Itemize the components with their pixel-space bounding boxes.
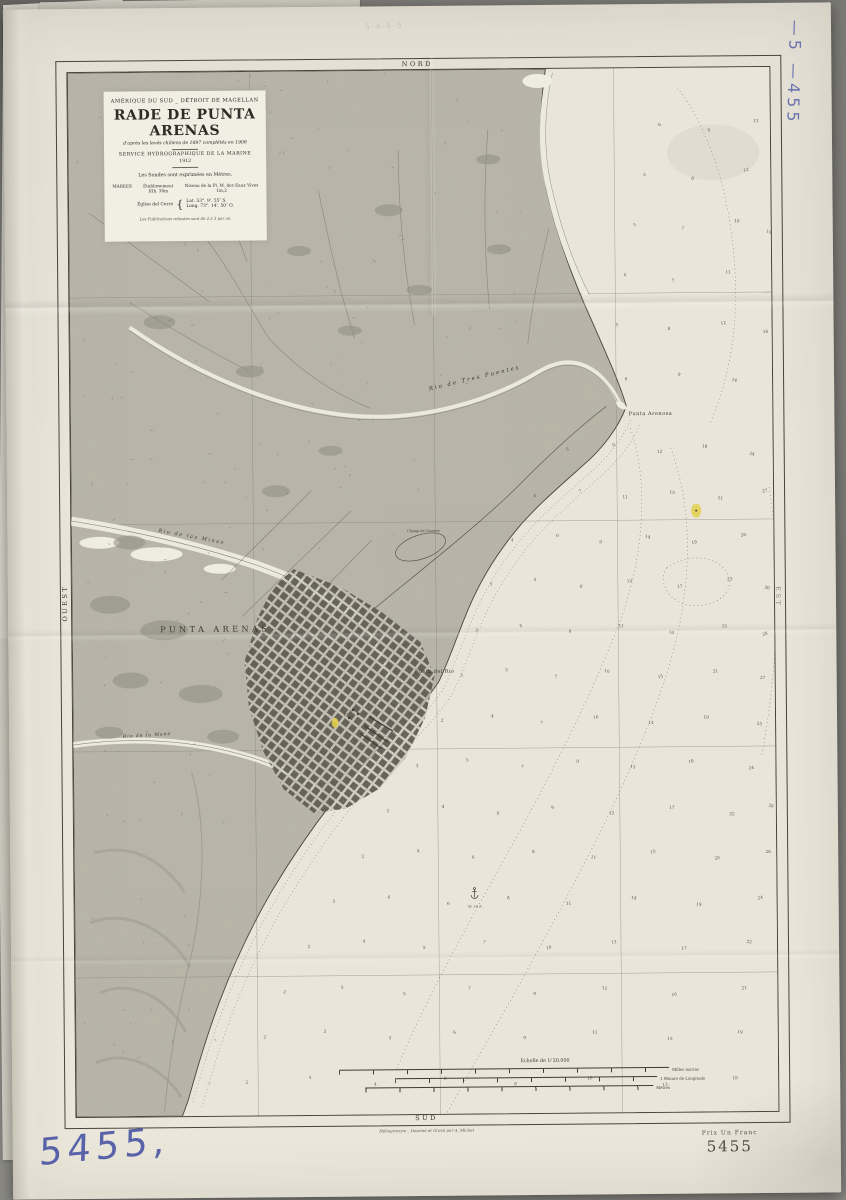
sounding-value: 5 [505, 667, 508, 672]
sounding-value: 20 [714, 855, 720, 861]
establishment-col: Établissement IIIh. 30m [143, 183, 173, 193]
chart-title: RADE DE PUNTA ARENAS [104, 106, 266, 139]
map-label: Punta del Rio [415, 669, 454, 675]
scale-bar-miles-label: Milles marins [672, 1067, 699, 1072]
compass-label-west: OUEST [59, 573, 72, 633]
scale-bar-longitude-label: 1 Minute de Longitude [660, 1076, 705, 1081]
sounding-value: 11 [725, 269, 731, 274]
brace: { [176, 198, 183, 211]
sounding-value: 7 [681, 226, 684, 231]
map-label: Punta Arenosa [629, 411, 673, 417]
agency-label: SERVICE HYDROGRAPHIQUE DE LA MARINE [104, 151, 266, 157]
sounding-value: 17 [677, 583, 683, 589]
sounding-value: 14 [648, 720, 654, 725]
sounding-value: 11 [592, 1029, 598, 1034]
tides-table: MARÉES Établissement IIIh. 30m Niveau de… [112, 182, 258, 193]
sounding-value: 13 [611, 939, 617, 945]
sounding-value: 13 [753, 118, 759, 123]
map-label: W. 30 E. [468, 904, 483, 908]
sounding-value: 15 [667, 1036, 673, 1042]
scale-bar-miles [339, 1067, 669, 1075]
sounding-value: 21 [713, 668, 719, 674]
sounding-value: 21 [741, 985, 747, 991]
station-name: Église del Cerro [137, 202, 173, 207]
sounding-value: 16 [669, 630, 675, 636]
sounding-value: 22 [746, 939, 752, 945]
sounding-value: 23 [727, 576, 733, 581]
sounding-value: 6 [625, 376, 628, 381]
sounding-value: 17 [681, 946, 687, 951]
sounding-value: 7 [468, 986, 471, 991]
sounding-value: 15 [669, 490, 675, 496]
sounding-value: 14 [631, 895, 637, 901]
terrain-speckle [361, 342, 362, 344]
sounding-value: 6 [556, 533, 559, 538]
scale-block: Echelle de 1⁄ 20.000 Milles marins 1 Min… [339, 1057, 751, 1093]
handwritten-number-vertical: —5 —455 [779, 19, 805, 170]
sounding-value: 18 [702, 443, 708, 449]
chart-year: 1912 [104, 158, 266, 164]
pencil-annotation: 5·4·5·5 [365, 21, 404, 31]
divider [172, 148, 198, 149]
sounding-value: 12 [657, 449, 663, 454]
sounding-value: 6 [472, 855, 475, 860]
sounding-value: 16 [763, 329, 769, 335]
sounding-value: 26 [766, 849, 772, 854]
region-label: AMÉRIQUE DU SUD _ DÉTROIT DE MAGELLAN [104, 97, 266, 104]
sounding-value: 4 [363, 939, 366, 944]
sounding-value: 11 [619, 623, 625, 628]
sounding-value: 11 [622, 494, 628, 499]
sounding-value: 3 [489, 581, 492, 586]
sounding-value: 2 [263, 1034, 266, 1039]
engraver-imprint: Héliogravure _ Dessiné et Gravé par A. M… [277, 1127, 577, 1135]
price-and-number: Prix Un Franc 5455 [685, 1129, 775, 1156]
sounding-value: 7 [521, 764, 524, 769]
station-coordinates: Lat. 53°. 9'. 55″ S. Long. 73°. 14'. 50″… [186, 199, 234, 209]
sounding-value: 3 [386, 808, 389, 813]
scale-bar-metres-label: Mètres [656, 1085, 670, 1090]
map-inner-border: 6913581257101447115812166914591218244711… [66, 66, 779, 1118]
title-footnote: Les Publications relevées sont de 2 à 3 … [105, 215, 267, 221]
scale-bar-longitude [395, 1076, 657, 1083]
tides-label: MARÉES [112, 183, 132, 193]
sounding-value: 10 [734, 218, 740, 224]
soundings-note: Les Sondes sont exprimées en Mètres. [104, 172, 266, 178]
sounding-value: 19 [703, 714, 709, 720]
sounding-value: 17 [669, 805, 675, 810]
sounding-value: 27 [760, 675, 766, 680]
divider [172, 166, 198, 167]
sounding-value: 24 [748, 765, 754, 771]
price-label: Prix Un Franc [685, 1129, 775, 1137]
level-col: Niveau de la Pl. M. des Eaux Vives 1m,2 [185, 182, 259, 193]
chart-paper: NORD SUD OUEST EST [3, 2, 841, 1199]
sounding-value: 10 [593, 714, 599, 720]
chart-subtitle: d'après les levés chiliens de 1897 compl… [104, 140, 266, 146]
sounding-value: 22 [729, 811, 735, 817]
sounding-value: 12 [609, 810, 615, 816]
map-label: Champ de Courses [407, 529, 440, 533]
sounding-value: 26 [740, 532, 746, 538]
catalog-number: 5455 [685, 1137, 775, 1156]
sounding-value: 11 [566, 901, 572, 906]
reference-station: Église del Cerro { Lat. 53°. 9'. 55″ S. … [104, 197, 266, 211]
sounding-value: 30 [764, 585, 770, 591]
map-label: PUNTA ARENAS [160, 624, 270, 634]
title-block: AMÉRIQUE DU SUD _ DÉTROIT DE MAGELLAN RA… [104, 90, 267, 241]
